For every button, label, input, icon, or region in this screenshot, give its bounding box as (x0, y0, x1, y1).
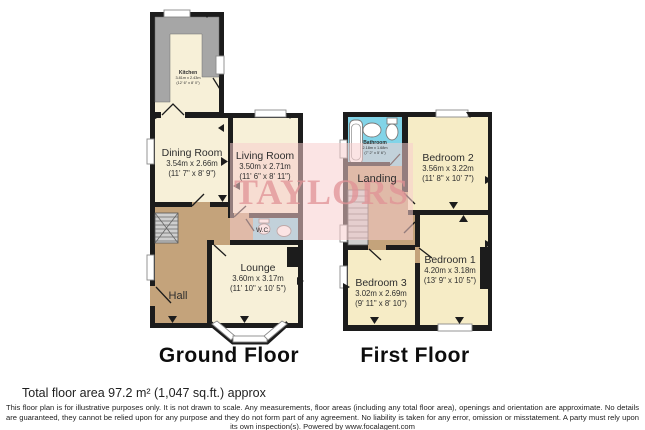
room-label-hall: Hall (158, 290, 198, 302)
room-label-bedroom-2: Bedroom 2 3.56m x 3.22m (11' 8" x 10' 7"… (404, 152, 492, 183)
room-label-bedroom-3: Bedroom 3 3.02m x 2.69m (9' 11" x 8' 10"… (339, 277, 423, 308)
room-label-bathroom: Bathroom 2.18m x 1.68m (7' 2" x 5' 6") (352, 140, 398, 155)
room-label-wc: W.C. (247, 227, 279, 234)
ground-floor-title: Ground Floor (139, 344, 319, 368)
room-label-living-room: Living Room 3.50m x 2.71m (11' 6" x 8' 1… (221, 150, 309, 181)
disclaimer-text: This floor plan is for illustrative purp… (6, 403, 639, 430)
bathroom-basin-icon (363, 123, 381, 137)
total-floor-area: Total floor area 97.2 m² (1,047 sq.ft.) … (22, 386, 266, 400)
room-label-lounge: Lounge 3.60m x 3.17m (11' 10" x 10' 5") (214, 262, 302, 293)
bay-window-center (233, 336, 267, 342)
room-label-kitchen: Kitchen 3.81m x 2.43m (12' 6" x 8' 0") (158, 70, 218, 85)
room-label-landing: Landing (349, 173, 405, 185)
first-floor-title: First Floor (335, 344, 495, 368)
bathroom-toilet-icon (386, 124, 398, 140)
bathroom-cistern-icon (387, 118, 397, 124)
floor-plan-page: TAYLORS Kitchen 3.81m x 2.43m (12' 6" x … (0, 0, 645, 430)
